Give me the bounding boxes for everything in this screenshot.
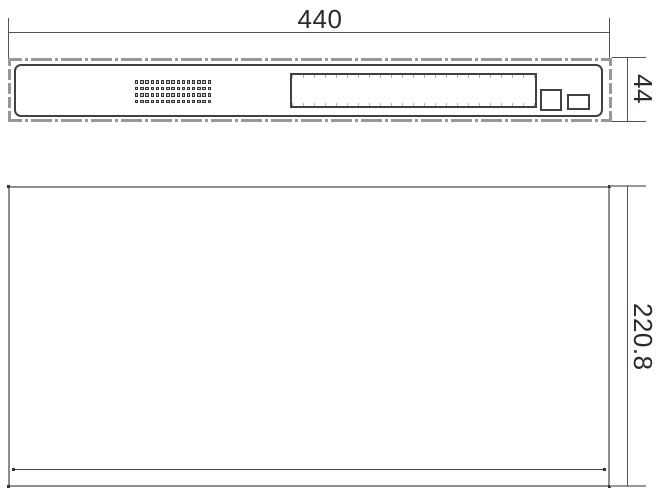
- vent-hole: [192, 93, 195, 97]
- port-tick-row-top: [292, 75, 535, 78]
- vent-hole: [161, 93, 164, 97]
- chassis-hidden-edge-left: [8, 58, 11, 122]
- vent-hole: [192, 100, 195, 104]
- vent-hole: [171, 93, 174, 97]
- vent-hole: [145, 100, 148, 104]
- vent-hole: [140, 100, 143, 104]
- chassis-hidden-edge-right: [609, 58, 612, 122]
- chassis-hidden-edge-bottom: [8, 119, 612, 122]
- vent-hole: [208, 100, 211, 104]
- vent-hole: [145, 93, 148, 97]
- vent-hole: [192, 87, 195, 91]
- vent-hole: [202, 93, 205, 97]
- vent-hole: [156, 100, 159, 104]
- top-view-corner-dot-tl: [7, 185, 10, 188]
- vent-hole: [156, 93, 159, 97]
- top-view-outline: [8, 186, 610, 487]
- vent-hole: [202, 87, 205, 91]
- vent-hole: [177, 80, 180, 84]
- vent-hole: [135, 93, 138, 97]
- vent-hole: [171, 80, 174, 84]
- port-tick-row-bottom: [292, 103, 535, 106]
- dim-height-label: 44: [630, 74, 656, 104]
- small-panel-cutout-1: [540, 89, 562, 111]
- technical-drawing-canvas: 440 44: [0, 0, 658, 501]
- top-view-inner-edge: [13, 469, 606, 471]
- vent-hole: [208, 87, 211, 91]
- vent-hole: [156, 80, 159, 84]
- vent-hole: [182, 87, 185, 91]
- vent-hole: [202, 80, 205, 84]
- vent-hole: [166, 80, 169, 84]
- vent-hole: [208, 80, 211, 84]
- vent-hole: [140, 80, 143, 84]
- vent-hole: [192, 80, 195, 84]
- vent-hole: [145, 80, 148, 84]
- vent-hole: [151, 93, 154, 97]
- vent-hole: [135, 100, 138, 104]
- vent-hole: [197, 80, 200, 84]
- vent-hole: [177, 87, 180, 91]
- vent-hole: [156, 87, 159, 91]
- vent-hole: [182, 93, 185, 97]
- vent-hole: [151, 100, 154, 104]
- vent-hole: [151, 87, 154, 91]
- vent-hole: [187, 100, 190, 104]
- vent-hole: [187, 87, 190, 91]
- vent-hole: [140, 93, 143, 97]
- vent-hole: [166, 100, 169, 104]
- vent-hole: [197, 93, 200, 97]
- vent-hole: [161, 80, 164, 84]
- dim-height-extension-bottom: [612, 121, 646, 122]
- inner-edge-dot-right: [603, 468, 606, 471]
- dim-width-label: 440: [280, 6, 360, 32]
- vent-hole: [151, 80, 154, 84]
- vent-hole: [135, 80, 138, 84]
- dim-height-extension-top: [612, 57, 646, 58]
- top-view-corner-dot-bl: [7, 485, 10, 488]
- vent-hole: [182, 80, 185, 84]
- vent-grid: [135, 80, 211, 103]
- vent-hole: [177, 93, 180, 97]
- inner-edge-dot-left: [12, 468, 15, 471]
- small-panel-cutout-2: [567, 94, 590, 110]
- vent-hole: [197, 87, 200, 91]
- vent-hole: [202, 100, 205, 104]
- vent-hole: [187, 80, 190, 84]
- vent-hole: [171, 87, 174, 91]
- dim-width-extension-right: [609, 18, 610, 58]
- vent-hole: [140, 87, 143, 91]
- vent-hole: [177, 100, 180, 104]
- vent-hole: [182, 100, 185, 104]
- chassis-hidden-edge-top: [8, 58, 612, 61]
- vent-hole: [145, 87, 148, 91]
- vent-hole: [135, 87, 138, 91]
- vent-hole: [171, 100, 174, 104]
- vent-hole: [161, 100, 164, 104]
- vent-hole: [208, 93, 211, 97]
- dim-width-line: [8, 32, 609, 33]
- dim-width-extension-left: [8, 18, 9, 58]
- dim-depth-label: 220.8: [630, 303, 656, 371]
- vent-hole: [166, 93, 169, 97]
- vent-hole: [166, 87, 169, 91]
- vent-hole: [197, 100, 200, 104]
- vent-hole: [161, 87, 164, 91]
- vent-hole: [187, 93, 190, 97]
